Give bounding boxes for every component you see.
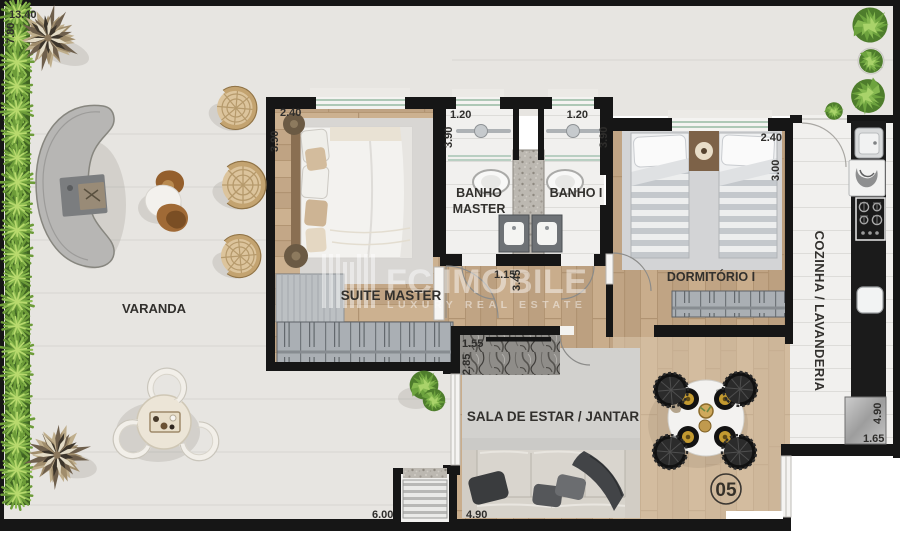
svg-text:13.40: 13.40 [9, 9, 37, 21]
svg-text:BANHO I: BANHO I [550, 186, 603, 200]
svg-text:3.90: 3.90 [269, 131, 281, 152]
svg-text:1.55: 1.55 [462, 338, 483, 350]
svg-text:3.90: 3.90 [598, 127, 610, 148]
svg-text:3.00: 3.00 [770, 160, 782, 181]
svg-text:VARANDA: VARANDA [122, 301, 187, 316]
svg-text:SALA DE ESTAR / JANTAR: SALA DE ESTAR / JANTAR [467, 409, 640, 424]
svg-text:DORMITÓRIO I: DORMITÓRIO I [667, 269, 755, 284]
svg-text:3.45: 3.45 [511, 270, 523, 291]
svg-text:7.80: 7.80 [5, 23, 17, 44]
svg-text:2.40: 2.40 [280, 107, 301, 119]
svg-text:05: 05 [715, 480, 737, 501]
svg-text:1.20: 1.20 [450, 109, 471, 121]
svg-text:SUITE MASTER: SUITE MASTER [341, 288, 442, 303]
svg-text:6.00: 6.00 [372, 509, 393, 521]
svg-text:2.85: 2.85 [461, 354, 473, 375]
svg-text:4.90: 4.90 [872, 403, 884, 424]
svg-text:COZINHA / LAVANDERIA: COZINHA / LAVANDERIA [812, 231, 827, 392]
svg-text:BANHO: BANHO [456, 186, 502, 200]
svg-text:2.40: 2.40 [761, 132, 782, 144]
svg-text:1.65: 1.65 [863, 433, 884, 445]
svg-text:4.90: 4.90 [466, 509, 487, 521]
svg-text:3.90: 3.90 [443, 127, 455, 148]
svg-text:MASTER: MASTER [453, 202, 506, 216]
svg-text:1.20: 1.20 [567, 109, 588, 121]
